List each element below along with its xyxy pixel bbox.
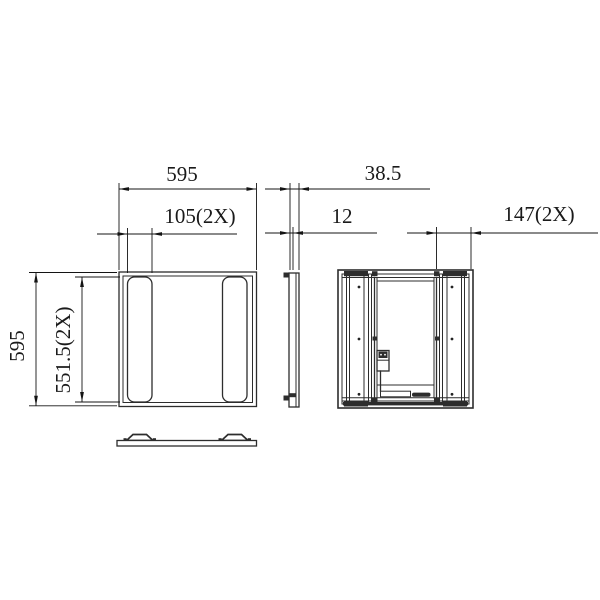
terminal-pin bbox=[384, 354, 386, 356]
rivet bbox=[451, 393, 454, 396]
opening-clip bbox=[372, 271, 378, 276]
arrowhead bbox=[471, 231, 481, 235]
opening-clip bbox=[434, 271, 440, 276]
bracket-right bbox=[222, 435, 249, 441]
technical-drawing: 595 105(2X) 38.5 12 147(2X) bbox=[0, 0, 600, 600]
clip-top bbox=[284, 273, 290, 278]
arrowhead bbox=[247, 187, 257, 191]
terminal-block bbox=[379, 352, 388, 359]
arrowhead bbox=[80, 392, 84, 402]
dim-label-panel-height: 595 bbox=[5, 330, 29, 362]
corner-cap bbox=[443, 271, 467, 276]
arrowhead bbox=[119, 187, 129, 191]
bracket-left bbox=[127, 435, 154, 441]
rivet bbox=[358, 286, 361, 289]
corner-cap bbox=[443, 401, 467, 406]
side-profile-view bbox=[284, 273, 300, 408]
corner-cap bbox=[344, 401, 368, 406]
arrowhead bbox=[280, 187, 290, 191]
drawing-canvas: 595 105(2X) 38.5 12 147(2X) bbox=[0, 0, 600, 600]
cable-tray bbox=[381, 391, 411, 397]
mounting-slot-right bbox=[223, 277, 248, 402]
arrowhead bbox=[118, 232, 128, 236]
arrowhead bbox=[427, 231, 437, 235]
dim-label-panel-width: 595 bbox=[166, 162, 198, 186]
opening-clip bbox=[372, 398, 378, 403]
arrowhead bbox=[34, 273, 38, 283]
rivet bbox=[358, 393, 361, 396]
front-view bbox=[119, 272, 257, 407]
arrowhead bbox=[80, 277, 84, 287]
dimension-slot-width: 105(2X) bbox=[97, 204, 237, 273]
dim-label-slot-length: 551.5(2X) bbox=[51, 307, 75, 394]
dim-label-overall-depth: 38.5 bbox=[365, 161, 402, 185]
mid-clip bbox=[373, 337, 377, 341]
arrowhead bbox=[293, 231, 303, 235]
back-view bbox=[338, 270, 473, 408]
bottom-profile-view bbox=[117, 435, 257, 447]
dimension-side-channel-width: 147(2X) bbox=[407, 202, 598, 269]
arrowhead bbox=[280, 231, 290, 235]
opening-clip bbox=[434, 398, 440, 403]
base-plate bbox=[117, 441, 257, 447]
side-body bbox=[289, 273, 299, 407]
arrowhead bbox=[152, 232, 162, 236]
rivet bbox=[451, 338, 454, 341]
cable-coil bbox=[412, 393, 431, 397]
terminal-pin bbox=[380, 354, 382, 356]
rivet bbox=[451, 286, 454, 289]
arrowhead bbox=[299, 187, 309, 191]
mid-clip bbox=[435, 337, 439, 341]
rivet bbox=[358, 338, 361, 341]
clip-bottom-step bbox=[289, 393, 297, 397]
corner-cap bbox=[344, 271, 368, 276]
dim-label-side-channel-width: 147(2X) bbox=[503, 202, 574, 226]
dimension-slot-length: 551.5(2X) bbox=[51, 277, 120, 402]
dimension-frame-thickness: 12 bbox=[265, 204, 377, 270]
clip-bottom bbox=[284, 396, 290, 401]
mounting-slot-left bbox=[128, 277, 153, 402]
dim-label-slot-width: 105(2X) bbox=[164, 204, 235, 228]
dim-label-frame-thickness: 12 bbox=[332, 204, 353, 228]
arrowhead bbox=[34, 396, 38, 406]
